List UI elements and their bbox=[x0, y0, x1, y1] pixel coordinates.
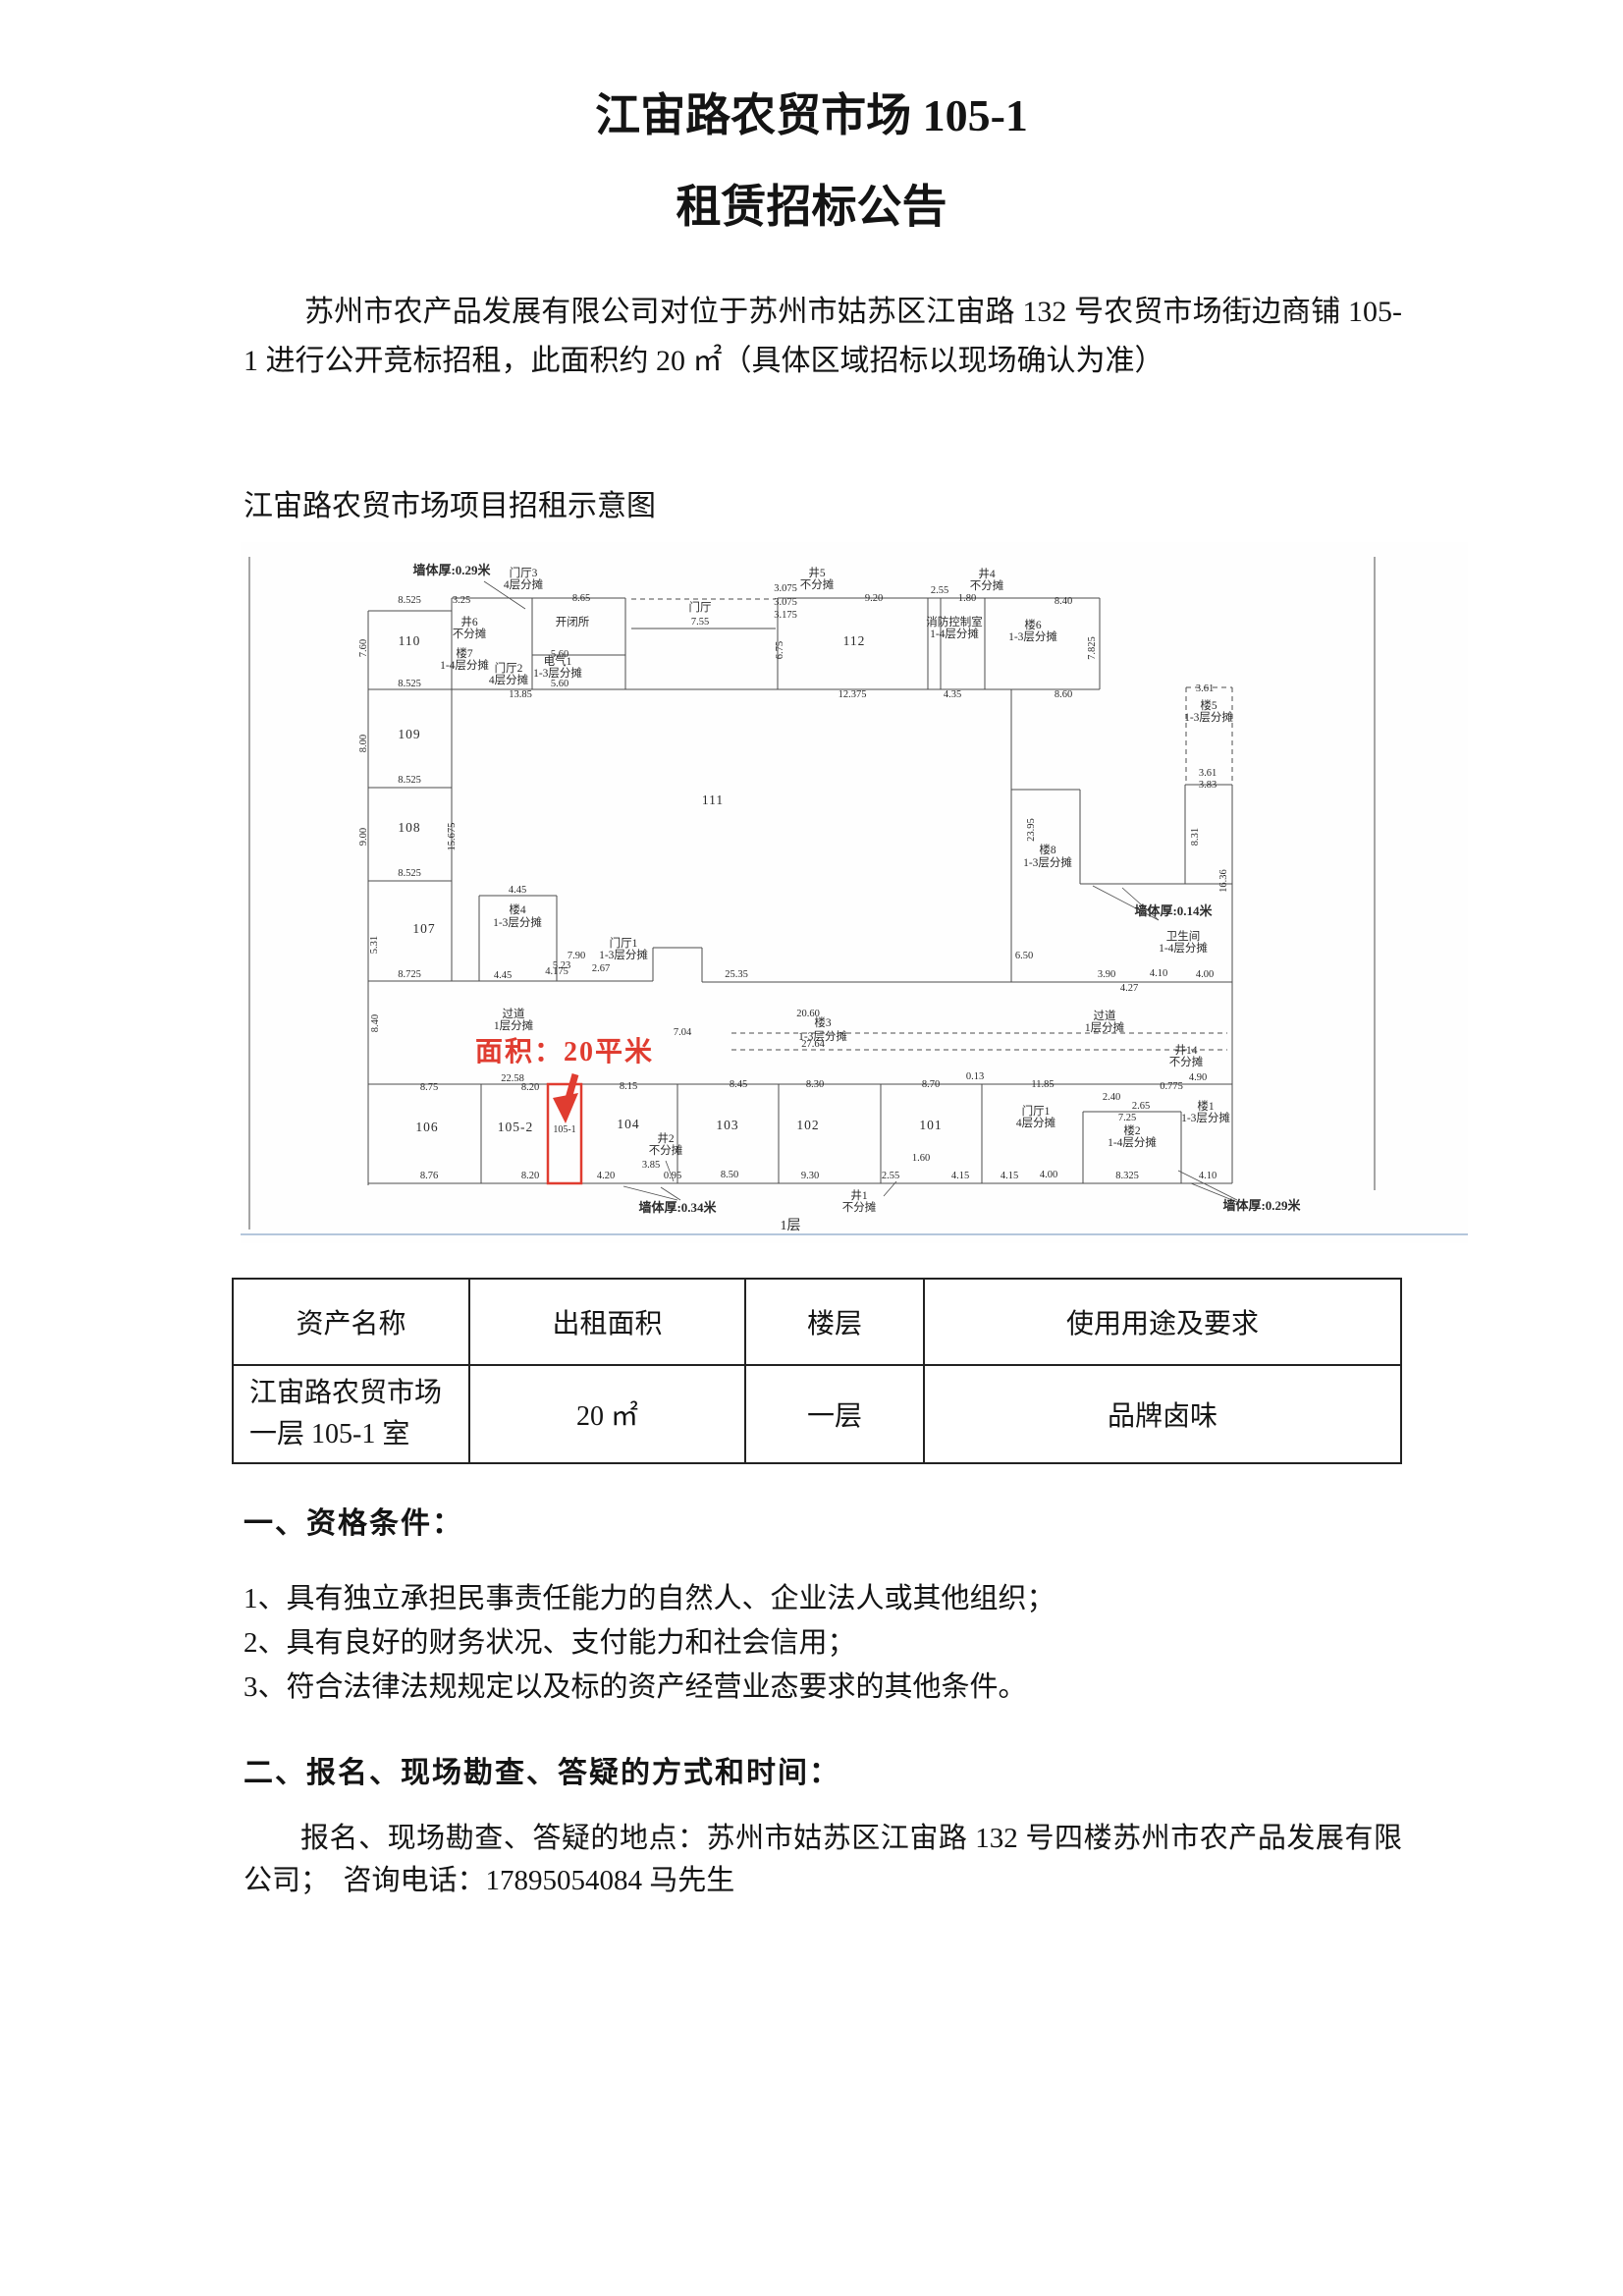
list-item: 3、符合法律法规规定以及标的资产经营业态要求的其他条件。 bbox=[243, 1666, 1412, 1710]
svg-text:不分摊: 不分摊 bbox=[842, 1200, 877, 1214]
svg-text:102: 102 bbox=[796, 1118, 819, 1132]
svg-text:不分摊: 不分摊 bbox=[453, 627, 487, 640]
svg-text:4.10: 4.10 bbox=[1150, 968, 1167, 979]
floor-plan: 3.258.6513.855.605.603.0753.0753.1759.20… bbox=[241, 542, 1468, 1243]
svg-text:4.20: 4.20 bbox=[597, 1171, 615, 1181]
svg-text:门厅2: 门厅2 bbox=[495, 661, 523, 675]
svg-text:楼1: 楼1 bbox=[1197, 1099, 1214, 1113]
svg-text:1-4层分摊: 1-4层分摊 bbox=[440, 658, 489, 672]
svg-text:3.075: 3.075 bbox=[774, 597, 797, 608]
svg-text:3.075: 3.075 bbox=[774, 583, 797, 594]
svg-text:井5: 井5 bbox=[808, 566, 825, 579]
svg-text:1-3层分摊: 1-3层分摊 bbox=[493, 915, 542, 929]
svg-text:3.61: 3.61 bbox=[1199, 768, 1217, 779]
svg-text:8.525: 8.525 bbox=[398, 679, 421, 689]
svg-text:8.725: 8.725 bbox=[398, 969, 421, 980]
svg-text:过道: 过道 bbox=[1094, 1009, 1116, 1022]
svg-text:1-4层分摊: 1-4层分摊 bbox=[1159, 941, 1208, 955]
svg-text:105-2: 105-2 bbox=[498, 1120, 534, 1134]
svg-text:3.61: 3.61 bbox=[1196, 683, 1214, 694]
svg-text:8.65: 8.65 bbox=[572, 593, 590, 604]
svg-text:0.95: 0.95 bbox=[664, 1171, 681, 1181]
svg-text:8.525: 8.525 bbox=[398, 595, 421, 606]
svg-text:0.775: 0.775 bbox=[1160, 1081, 1183, 1092]
svg-text:8.15: 8.15 bbox=[620, 1081, 637, 1092]
svg-text:108: 108 bbox=[398, 820, 420, 835]
svg-text:4.10: 4.10 bbox=[1199, 1171, 1217, 1181]
svg-text:楼4: 楼4 bbox=[509, 902, 525, 916]
svg-text:8.525: 8.525 bbox=[398, 775, 421, 786]
svg-text:卫生间: 卫生间 bbox=[1166, 929, 1201, 943]
svg-text:4层分摊: 4层分摊 bbox=[1016, 1116, 1056, 1129]
svg-text:13.85: 13.85 bbox=[509, 689, 532, 700]
svg-text:1层分摊: 1层分摊 bbox=[1085, 1020, 1125, 1034]
svg-text:4.45: 4.45 bbox=[509, 885, 526, 896]
svg-text:15.675: 15.675 bbox=[447, 823, 458, 851]
section-1-items: 1、具有独立承担民事责任能力的自然人、企业法人或其他组织； 2、具有良好的财务状… bbox=[243, 1577, 1412, 1710]
svg-text:25.35: 25.35 bbox=[725, 969, 748, 980]
svg-text:井14: 井14 bbox=[1175, 1043, 1198, 1057]
svg-text:109: 109 bbox=[398, 727, 420, 741]
svg-text:8.40: 8.40 bbox=[370, 1014, 381, 1032]
svg-text:开闭所: 开闭所 bbox=[556, 616, 590, 629]
floor-plan-svg: 3.258.6513.855.605.603.0753.0753.1759.20… bbox=[241, 542, 1468, 1243]
svg-text:4.35: 4.35 bbox=[944, 689, 961, 700]
svg-text:4.27: 4.27 bbox=[1120, 983, 1138, 994]
closing-paragraph: 报名、现场勘查、答疑的地点：苏州市姑苏区江宙路 132 号四楼苏州市农产品发展有… bbox=[243, 1818, 1402, 1902]
cell-floor: 一层 bbox=[745, 1365, 924, 1463]
svg-text:墙体厚:0.34米: 墙体厚:0.34米 bbox=[638, 1200, 717, 1215]
svg-text:5.23: 5.23 bbox=[553, 960, 570, 971]
svg-text:8.20: 8.20 bbox=[521, 1082, 539, 1093]
svg-text:12.375: 12.375 bbox=[839, 689, 867, 700]
svg-text:8.325: 8.325 bbox=[1115, 1171, 1139, 1181]
svg-text:楼3: 楼3 bbox=[814, 1015, 831, 1029]
svg-text:楼8: 楼8 bbox=[1039, 843, 1055, 856]
svg-text:4层分摊: 4层分摊 bbox=[504, 577, 544, 591]
section-1-heading: 一、资格条件： bbox=[243, 1499, 463, 1542]
intro-paragraph: 苏州市农产品发展有限公司对位于苏州市姑苏区江宙路 132 号农贸市场街边商铺 1… bbox=[243, 288, 1402, 386]
svg-text:墙体厚:0.29米: 墙体厚:0.29米 bbox=[1222, 1198, 1301, 1213]
svg-text:107: 107 bbox=[412, 921, 435, 936]
svg-text:8.20: 8.20 bbox=[521, 1171, 539, 1181]
svg-text:门厅1: 门厅1 bbox=[610, 936, 638, 950]
col-header-asset-name: 资产名称 bbox=[233, 1279, 469, 1365]
svg-text:111: 111 bbox=[702, 793, 724, 807]
svg-text:2.65: 2.65 bbox=[1132, 1101, 1150, 1112]
svg-text:7.825: 7.825 bbox=[1087, 636, 1098, 660]
svg-text:1-3层分摊: 1-3层分摊 bbox=[798, 1029, 847, 1043]
svg-text:7.55: 7.55 bbox=[691, 617, 709, 628]
svg-text:5.60: 5.60 bbox=[551, 679, 568, 689]
svg-text:105-1: 105-1 bbox=[553, 1124, 575, 1135]
svg-text:1-4层分摊: 1-4层分摊 bbox=[930, 627, 979, 640]
svg-text:8.40: 8.40 bbox=[1055, 596, 1072, 607]
svg-text:4.15: 4.15 bbox=[951, 1171, 969, 1181]
svg-text:8.525: 8.525 bbox=[398, 868, 421, 879]
svg-text:9.30: 9.30 bbox=[801, 1171, 819, 1181]
svg-text:4层分摊: 4层分摊 bbox=[489, 673, 529, 686]
svg-text:9.20: 9.20 bbox=[865, 593, 883, 604]
col-header-floor: 楼层 bbox=[745, 1279, 924, 1365]
list-item: 2、具有良好的财务状况、支付能力和社会信用； bbox=[243, 1621, 1412, 1666]
svg-text:2.40: 2.40 bbox=[1103, 1092, 1120, 1103]
table-header-row: 资产名称 出租面积 楼层 使用用途及要求 bbox=[233, 1279, 1401, 1365]
svg-text:楼2: 楼2 bbox=[1123, 1123, 1140, 1137]
svg-text:9.00: 9.00 bbox=[358, 828, 369, 846]
svg-text:112: 112 bbox=[843, 633, 866, 648]
svg-text:16.36: 16.36 bbox=[1218, 869, 1229, 893]
svg-text:8.75: 8.75 bbox=[420, 1082, 438, 1093]
svg-text:3.175: 3.175 bbox=[774, 610, 797, 621]
svg-text:1.80: 1.80 bbox=[958, 593, 976, 604]
svg-text:过道: 过道 bbox=[503, 1007, 525, 1020]
svg-text:不分摊: 不分摊 bbox=[1169, 1055, 1204, 1068]
svg-text:8.60: 8.60 bbox=[1055, 689, 1072, 700]
svg-text:103: 103 bbox=[716, 1118, 738, 1132]
svg-text:不分摊: 不分摊 bbox=[649, 1143, 683, 1157]
announcement-page: 江宙路农贸市场 105-1 租赁招标公告 苏州市农产品发展有限公司对位于苏州市姑… bbox=[0, 0, 1623, 2296]
svg-text:8.00: 8.00 bbox=[358, 735, 369, 752]
col-header-rent-area: 出租面积 bbox=[469, 1279, 745, 1365]
svg-text:7.25: 7.25 bbox=[1118, 1113, 1136, 1123]
svg-text:消防控制室: 消防控制室 bbox=[926, 615, 983, 629]
svg-text:门厅: 门厅 bbox=[689, 600, 712, 614]
svg-text:7.60: 7.60 bbox=[358, 639, 369, 657]
svg-text:11.85: 11.85 bbox=[1031, 1079, 1054, 1090]
svg-text:井2: 井2 bbox=[657, 1131, 674, 1145]
svg-text:6.75: 6.75 bbox=[775, 641, 785, 659]
svg-text:8.45: 8.45 bbox=[730, 1079, 747, 1090]
svg-text:1-3层分摊: 1-3层分摊 bbox=[1008, 629, 1057, 643]
svg-text:楼6: 楼6 bbox=[1024, 618, 1041, 631]
svg-text:2.67: 2.67 bbox=[592, 963, 610, 974]
svg-text:0.13: 0.13 bbox=[966, 1071, 984, 1082]
figure-caption: 江宙路农贸市场项目招租示意图 bbox=[243, 481, 656, 524]
svg-text:门厅3: 门厅3 bbox=[510, 566, 538, 579]
svg-text:楼5: 楼5 bbox=[1200, 698, 1217, 712]
svg-text:2.55: 2.55 bbox=[882, 1171, 899, 1181]
asset-table: 资产名称 出租面积 楼层 使用用途及要求 江宙路农贸市场一层 105-1 室 2… bbox=[232, 1278, 1402, 1464]
table-row: 江宙路农贸市场一层 105-1 室 20 ㎡ 一层 品牌卤味 bbox=[233, 1365, 1401, 1463]
cell-usage: 品牌卤味 bbox=[924, 1365, 1401, 1463]
svg-text:4.00: 4.00 bbox=[1040, 1170, 1057, 1180]
svg-text:面积：20平米: 面积：20平米 bbox=[475, 1036, 654, 1067]
svg-text:106: 106 bbox=[415, 1120, 438, 1134]
svg-text:门厅1: 门厅1 bbox=[1022, 1104, 1051, 1118]
svg-text:104: 104 bbox=[617, 1117, 639, 1131]
svg-text:电气1: 电气1 bbox=[544, 654, 572, 668]
svg-text:3.85: 3.85 bbox=[642, 1160, 660, 1171]
svg-text:4.90: 4.90 bbox=[1189, 1072, 1207, 1083]
list-item: 1、具有独立承担民事责任能力的自然人、企业法人或其他组织； bbox=[243, 1577, 1412, 1621]
doc-title: 江宙路农贸市场 105-1 bbox=[0, 86, 1623, 145]
svg-text:3.25: 3.25 bbox=[453, 595, 470, 606]
svg-text:6.50: 6.50 bbox=[1015, 951, 1033, 961]
svg-text:5.31: 5.31 bbox=[369, 936, 380, 954]
svg-text:8.76: 8.76 bbox=[420, 1171, 438, 1181]
svg-text:不分摊: 不分摊 bbox=[970, 578, 1004, 592]
svg-text:1-4层分摊: 1-4层分摊 bbox=[1108, 1135, 1157, 1149]
svg-text:1-3层分摊: 1-3层分摊 bbox=[1023, 855, 1072, 869]
doc-subtitle: 租赁招标公告 bbox=[0, 178, 1623, 237]
svg-text:101: 101 bbox=[919, 1118, 942, 1132]
svg-text:1层: 1层 bbox=[781, 1219, 801, 1233]
svg-text:1-3层分摊: 1-3层分摊 bbox=[1181, 1111, 1230, 1124]
svg-text:8.50: 8.50 bbox=[721, 1170, 738, 1180]
cell-rent-area: 20 ㎡ bbox=[469, 1365, 745, 1463]
svg-text:井6: 井6 bbox=[460, 615, 477, 629]
svg-text:3.83: 3.83 bbox=[1199, 780, 1217, 791]
svg-text:7.04: 7.04 bbox=[674, 1027, 692, 1038]
svg-text:4.15: 4.15 bbox=[1001, 1171, 1018, 1181]
cell-asset-name: 江宙路农贸市场一层 105-1 室 bbox=[233, 1365, 469, 1463]
svg-text:1层分摊: 1层分摊 bbox=[494, 1018, 534, 1032]
svg-text:3.90: 3.90 bbox=[1098, 969, 1115, 980]
svg-text:井1: 井1 bbox=[850, 1188, 867, 1202]
svg-text:1-3层分摊: 1-3层分摊 bbox=[533, 666, 582, 680]
svg-text:1.60: 1.60 bbox=[912, 1153, 930, 1164]
svg-text:8.31: 8.31 bbox=[1190, 828, 1201, 846]
svg-text:1-3层分摊: 1-3层分摊 bbox=[599, 948, 648, 961]
svg-text:楼7: 楼7 bbox=[456, 646, 472, 660]
svg-text:墙体厚:0.14米: 墙体厚:0.14米 bbox=[1134, 903, 1213, 918]
svg-text:不分摊: 不分摊 bbox=[800, 577, 835, 591]
svg-text:4.45: 4.45 bbox=[494, 970, 512, 981]
svg-text:8.70: 8.70 bbox=[922, 1079, 940, 1090]
svg-text:2.55: 2.55 bbox=[931, 585, 948, 596]
svg-text:4.00: 4.00 bbox=[1196, 969, 1214, 980]
svg-text:1-3层分摊: 1-3层分摊 bbox=[1184, 710, 1233, 724]
svg-text:墙体厚:0.29米: 墙体厚:0.29米 bbox=[412, 563, 491, 577]
svg-text:110: 110 bbox=[399, 633, 421, 648]
section-2-heading: 二、报名、现场勘查、答疑的方式和时间： bbox=[243, 1748, 840, 1791]
svg-text:23.95: 23.95 bbox=[1026, 818, 1037, 842]
col-header-usage: 使用用途及要求 bbox=[924, 1279, 1401, 1365]
svg-text:井4: 井4 bbox=[978, 567, 995, 580]
svg-text:8.30: 8.30 bbox=[806, 1079, 824, 1090]
